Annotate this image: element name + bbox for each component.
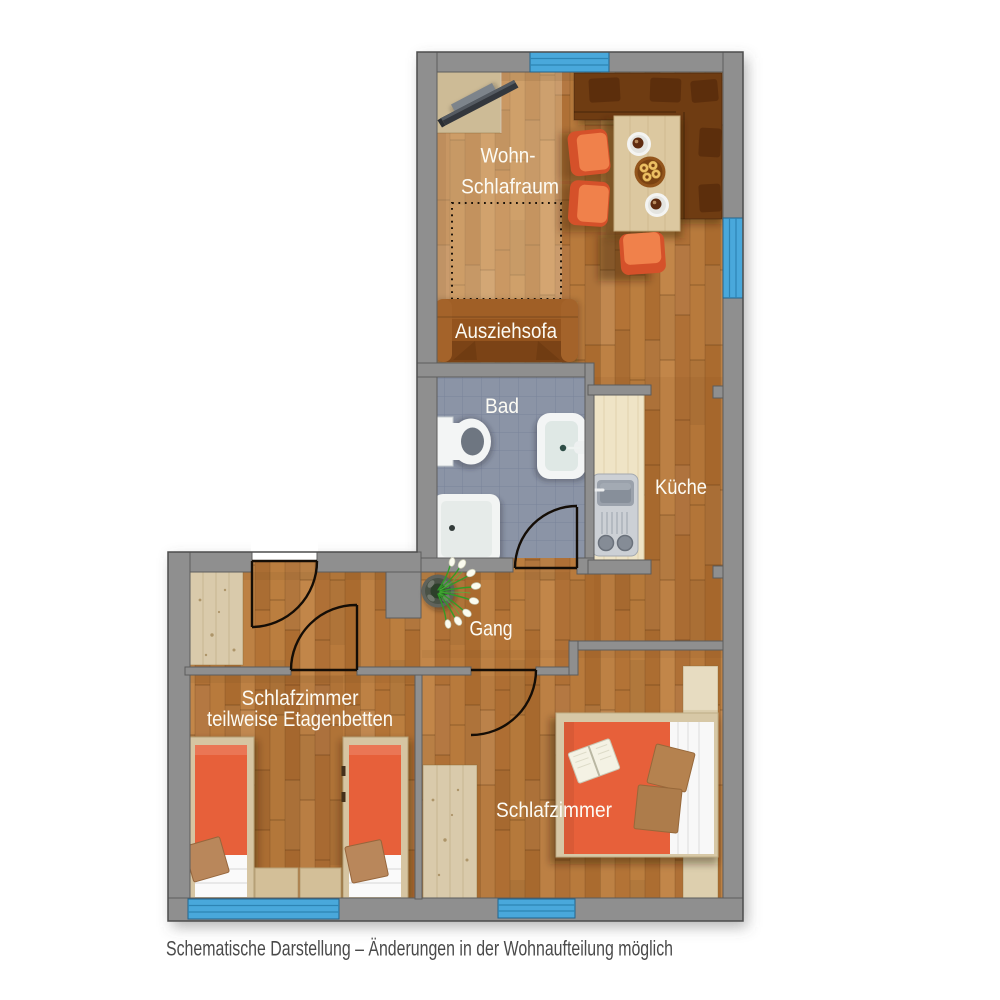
svg-text:Gang: Gang	[470, 617, 513, 641]
svg-text:Schematische Darstellung – Änd: Schematische Darstellung – Änderungen in…	[166, 937, 673, 961]
svg-text:Schlafraum: Schlafraum	[461, 175, 559, 199]
svg-text:Küche: Küche	[655, 475, 707, 499]
svg-text:Ausziehsofa: Ausziehsofa	[455, 319, 557, 343]
svg-text:Bad: Bad	[485, 394, 519, 418]
svg-text:Schlafzimmer: Schlafzimmer	[496, 798, 612, 822]
svg-text:Wohn-: Wohn-	[481, 144, 536, 168]
svg-text:teilweise Etagenbetten: teilweise Etagenbetten	[207, 707, 393, 731]
